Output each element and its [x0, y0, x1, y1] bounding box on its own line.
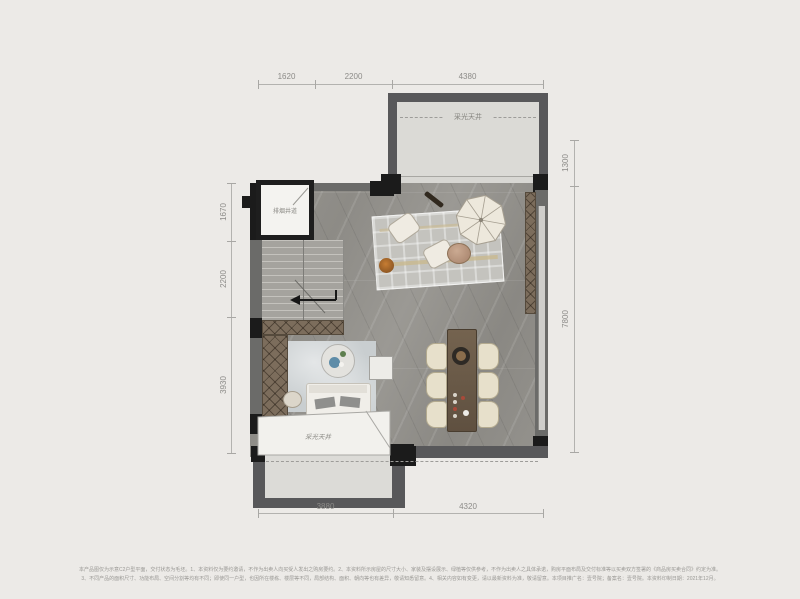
tea-tray	[452, 347, 470, 365]
sofa-cushion	[340, 396, 361, 408]
dim-tick	[392, 80, 393, 89]
dish-icon	[453, 393, 457, 397]
dim-label: 1620	[258, 73, 315, 81]
dish-icon	[461, 396, 465, 400]
sofa-back	[309, 385, 367, 393]
dining-table	[447, 329, 477, 432]
dining-chair	[426, 372, 447, 399]
wall-stub-left	[242, 196, 256, 208]
dish-icon	[453, 400, 457, 404]
dim-tick	[315, 80, 316, 89]
dim-tick	[227, 241, 236, 242]
dim-tick	[543, 509, 544, 518]
lightwell-bottom-label: 采光天井	[292, 431, 344, 441]
closet-horizontal	[262, 320, 344, 335]
dim-line-top	[258, 84, 543, 85]
floor-plan: 采光天井 排烟井道	[0, 0, 800, 599]
table-decor	[340, 351, 346, 357]
shaft-label: 排烟井道	[258, 206, 312, 215]
wall-block-courtyard	[390, 446, 416, 466]
side-table	[369, 356, 393, 380]
dim-label: 3930	[219, 365, 229, 405]
closet-right	[525, 192, 536, 314]
dim-label: 1670	[219, 192, 229, 232]
ottoman	[447, 243, 471, 264]
wall-left-bottom	[250, 414, 262, 434]
dim-label: 4380	[392, 73, 543, 81]
disclaimer-line-2: 3、不同产品的面积尺寸、功能布局、空间分割等均有不同；即使同一户型，也因所在楼栋…	[60, 575, 740, 584]
dim-line-left	[231, 183, 232, 453]
dim-tick	[227, 183, 236, 184]
dim-tick	[227, 453, 236, 454]
wall-left-stairs	[250, 240, 262, 318]
sofa-cushion	[314, 397, 335, 410]
dish-icon	[453, 414, 457, 418]
dish-icon	[463, 410, 469, 416]
plant	[379, 258, 394, 273]
wall-block-lightwell-left	[381, 174, 401, 194]
dining-chair	[478, 401, 499, 428]
disclaimer-line-1: 本产品图仅为示意C2户型平面，交付状态为毛坯。1、本资料仅为要约邀请，不作为出卖…	[60, 566, 740, 575]
coffee-table	[321, 344, 355, 378]
stairs-rail	[303, 240, 304, 320]
dining-chair	[478, 343, 499, 370]
dining-chair	[478, 372, 499, 399]
wall-left-mid	[250, 318, 262, 338]
dim-label: 2200	[219, 259, 229, 299]
dim-tick	[570, 452, 579, 453]
table-decor	[339, 362, 344, 367]
wall-left-lower	[250, 338, 262, 414]
dining-chair	[426, 401, 447, 428]
tea-pot	[456, 351, 466, 361]
dish-icon	[453, 407, 457, 411]
sofa	[306, 383, 371, 418]
dim-label: 1300	[561, 143, 571, 183]
dim-label: 3880	[258, 503, 393, 511]
lightwell-top-label: 采光天井	[443, 112, 493, 122]
dim-tick	[227, 317, 236, 318]
wall-block-courtyard-left	[251, 446, 265, 462]
dim-label: 4320	[393, 503, 543, 511]
dim-tick	[258, 80, 259, 89]
dim-tick	[543, 80, 544, 89]
courtyard-dashline	[266, 461, 538, 462]
dim-line-bottom	[258, 513, 543, 514]
side-chair	[283, 391, 302, 408]
dim-label: 7800	[561, 299, 571, 339]
dim-tick	[570, 186, 579, 187]
dining-chair	[426, 343, 447, 370]
window-right	[538, 206, 545, 430]
dim-label: 2200	[315, 73, 392, 81]
dim-tick	[570, 140, 579, 141]
